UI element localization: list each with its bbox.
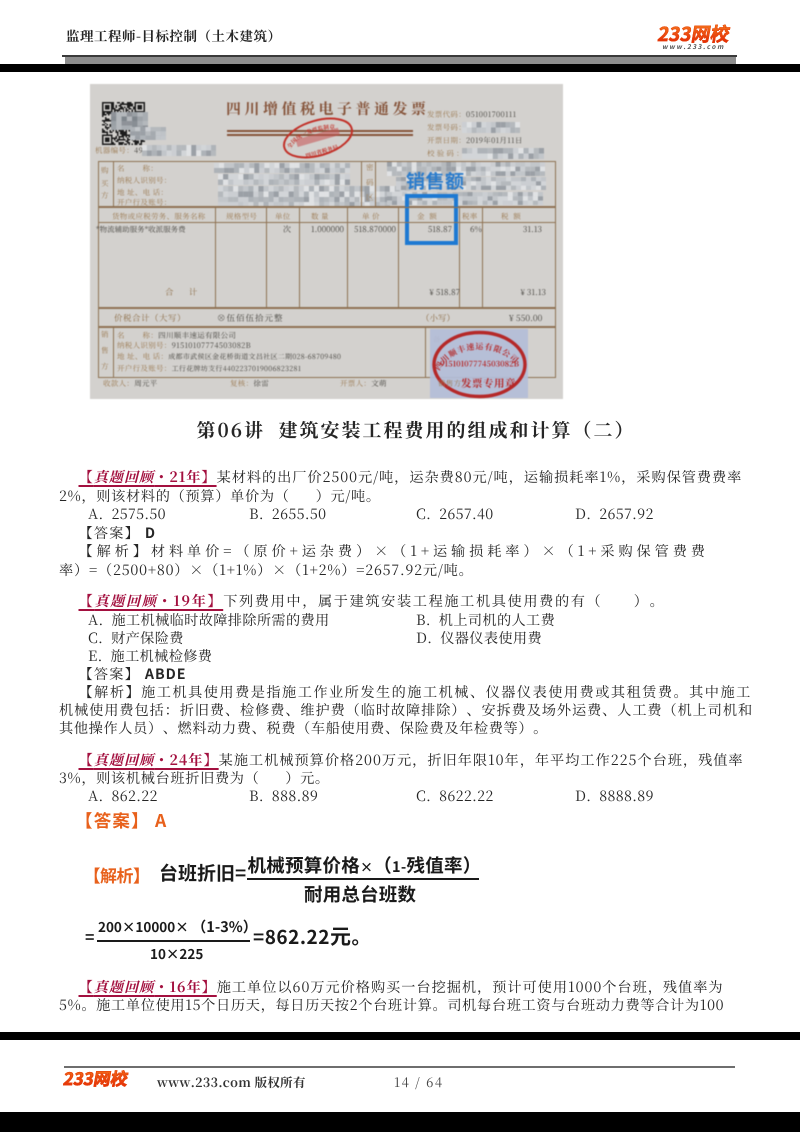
svg-text:91510107774503082B: 91510107774503082B bbox=[440, 359, 520, 370]
svg-text:四川省税务局: 四川省税务局 bbox=[305, 143, 340, 160]
